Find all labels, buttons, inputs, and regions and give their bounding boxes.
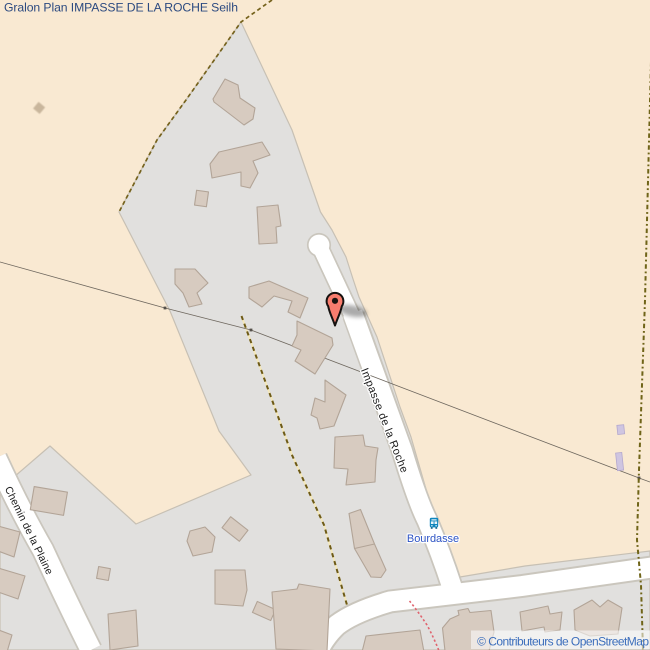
svg-text:© Contributeurs de OpenStreetM: © Contributeurs de OpenStreetMap (477, 635, 649, 649)
svg-text:Gralon Plan IMPASSE DE LA ROCH: Gralon Plan IMPASSE DE LA ROCHE Seilh (4, 1, 238, 15)
svg-text:Bourdasse: Bourdasse (407, 533, 459, 545)
